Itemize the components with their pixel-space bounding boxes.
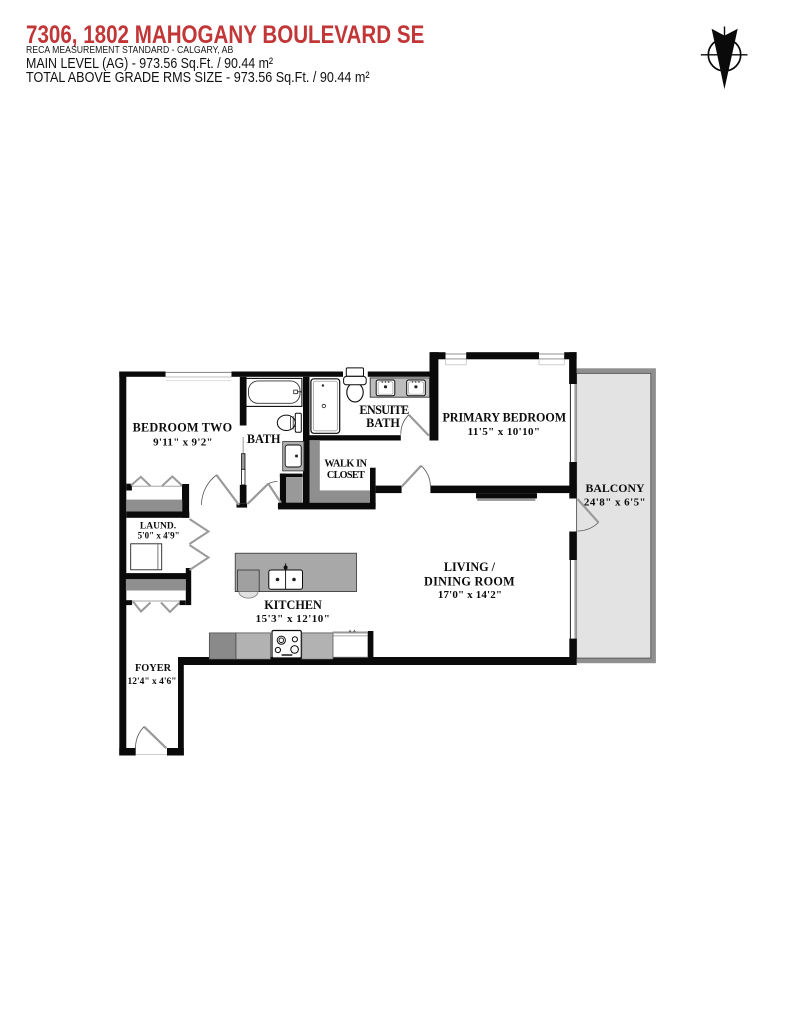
svg-text:24'8" x 6'5": 24'8" x 6'5" xyxy=(584,496,646,508)
svg-text:BATH: BATH xyxy=(247,432,281,446)
svg-text:BATH: BATH xyxy=(366,416,400,430)
svg-text:FOYER: FOYER xyxy=(135,663,172,674)
svg-text:WALK IN: WALK IN xyxy=(324,459,367,470)
svg-text:BEDROOM TWO: BEDROOM TWO xyxy=(133,421,233,435)
svg-text:5'0" x 4'9": 5'0" x 4'9" xyxy=(138,530,180,540)
svg-text:17'0" x 14'2": 17'0" x 14'2" xyxy=(438,589,502,601)
svg-text:9'11" x 9'2": 9'11" x 9'2" xyxy=(153,437,213,449)
svg-text:PRIMARY BEDROOM: PRIMARY BEDROOM xyxy=(442,411,566,425)
svg-text:CLOSET: CLOSET xyxy=(327,470,365,481)
svg-text:DINING ROOM: DINING ROOM xyxy=(424,574,515,588)
svg-text:BALCONY: BALCONY xyxy=(586,481,645,495)
svg-text:11'5" x 10'10": 11'5" x 10'10" xyxy=(468,426,541,438)
svg-text:15'3" x 12'10": 15'3" x 12'10" xyxy=(256,613,331,625)
svg-text:KITCHEN: KITCHEN xyxy=(264,598,322,612)
svg-text:12'4" x 4'6": 12'4" x 4'6" xyxy=(127,677,176,687)
svg-text:LIVING /: LIVING / xyxy=(444,560,496,574)
